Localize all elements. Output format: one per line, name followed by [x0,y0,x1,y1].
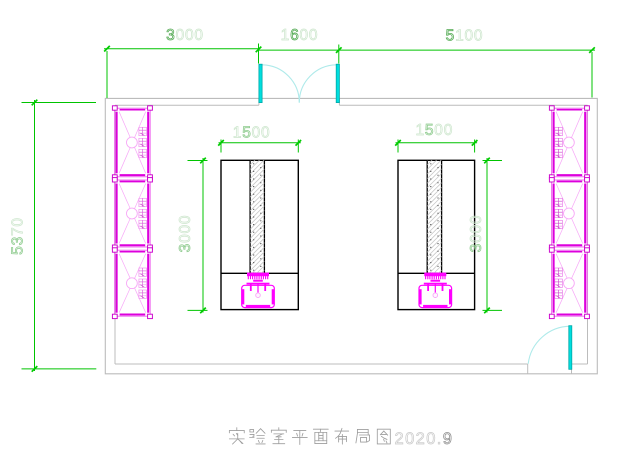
svg-text:1600: 1600 [281,27,319,44]
svg-text:3000: 3000 [166,27,204,44]
svg-text:1500: 1500 [233,124,271,141]
svg-text:2020.9: 2020.9 [395,430,454,448]
svg-text:3000: 3000 [177,215,194,253]
svg-text:1500: 1500 [415,122,453,139]
svg-text:3000: 3000 [468,215,485,253]
svg-text:5370: 5370 [10,217,27,255]
svg-text:5100: 5100 [446,28,484,45]
